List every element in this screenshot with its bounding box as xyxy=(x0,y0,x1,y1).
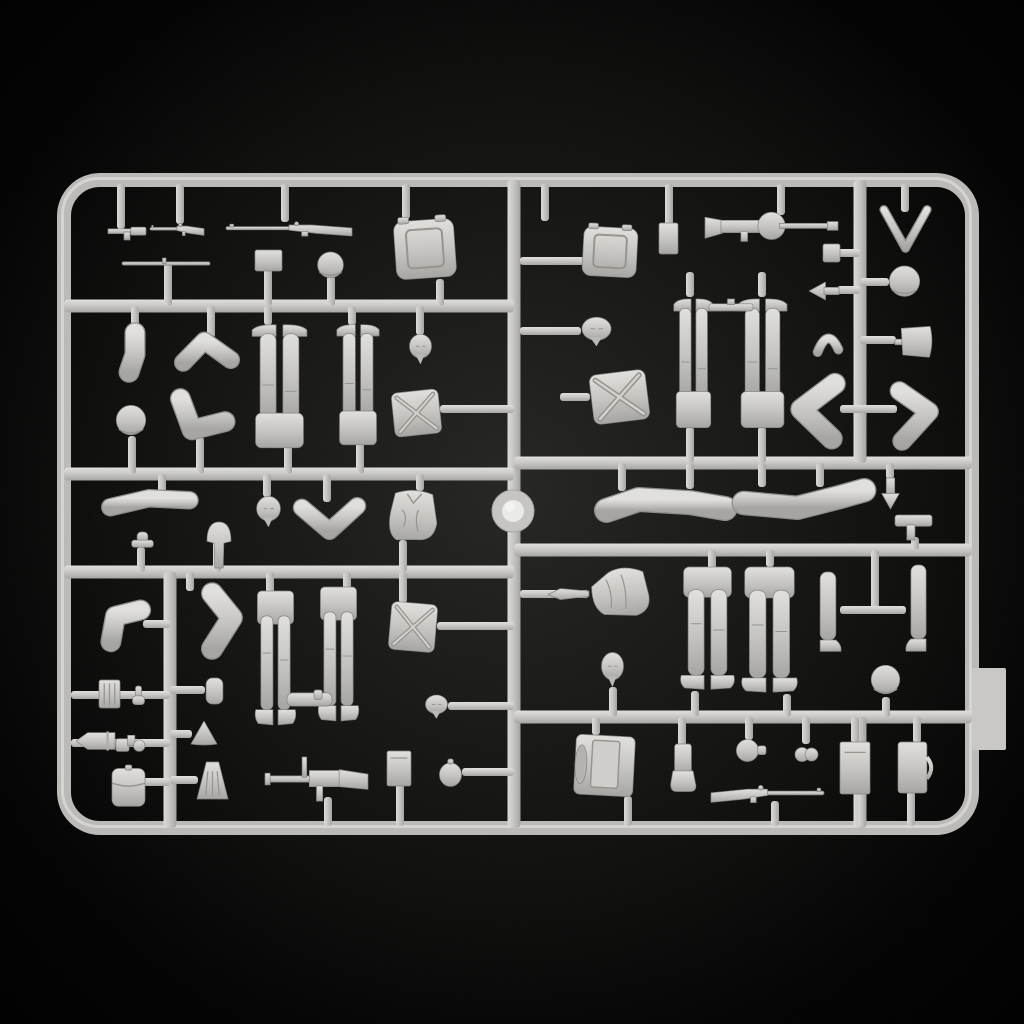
sprue-photo-svg xyxy=(0,0,1024,1024)
sprue-container xyxy=(0,0,1024,1024)
product-photo xyxy=(0,0,1024,1024)
photo-vignette xyxy=(0,0,1024,1024)
